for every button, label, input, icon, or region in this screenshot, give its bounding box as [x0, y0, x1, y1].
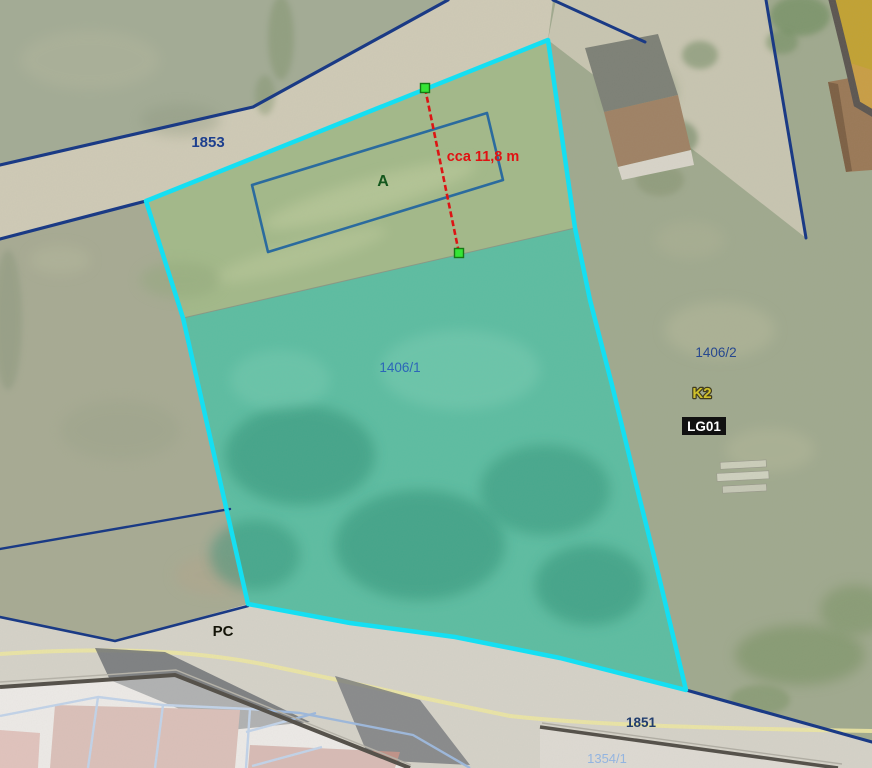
label-zone-k2: K2 [692, 385, 711, 402]
label-building-plot-a: A [377, 173, 389, 190]
photo-grain [0, 0, 872, 768]
zone-badge-lg01: LG01 [682, 417, 726, 435]
zone-badge-text: LG01 [687, 419, 721, 434]
map-viewport[interactable]: cca 11,8 m 1853 A 1406/1 1406/2 K2 LG01 … [0, 0, 872, 768]
label-road-1853: 1853 [191, 134, 224, 151]
measure-endpoint-icon[interactable] [455, 249, 464, 258]
measure-endpoint-icon[interactable] [421, 84, 430, 93]
measurement-label: cca 11,8 m [447, 149, 520, 165]
label-parcel-1406-2: 1406/2 [695, 345, 736, 360]
label-parcel-1354-1: 1354/1 [587, 751, 627, 766]
label-parcel-1406-1: 1406/1 [379, 360, 420, 375]
label-road-class-pc: PC [213, 623, 234, 640]
map-canvas[interactable]: cca 11,8 m 1853 A 1406/1 1406/2 K2 LG01 … [0, 0, 872, 768]
label-road-1851: 1851 [626, 715, 657, 730]
